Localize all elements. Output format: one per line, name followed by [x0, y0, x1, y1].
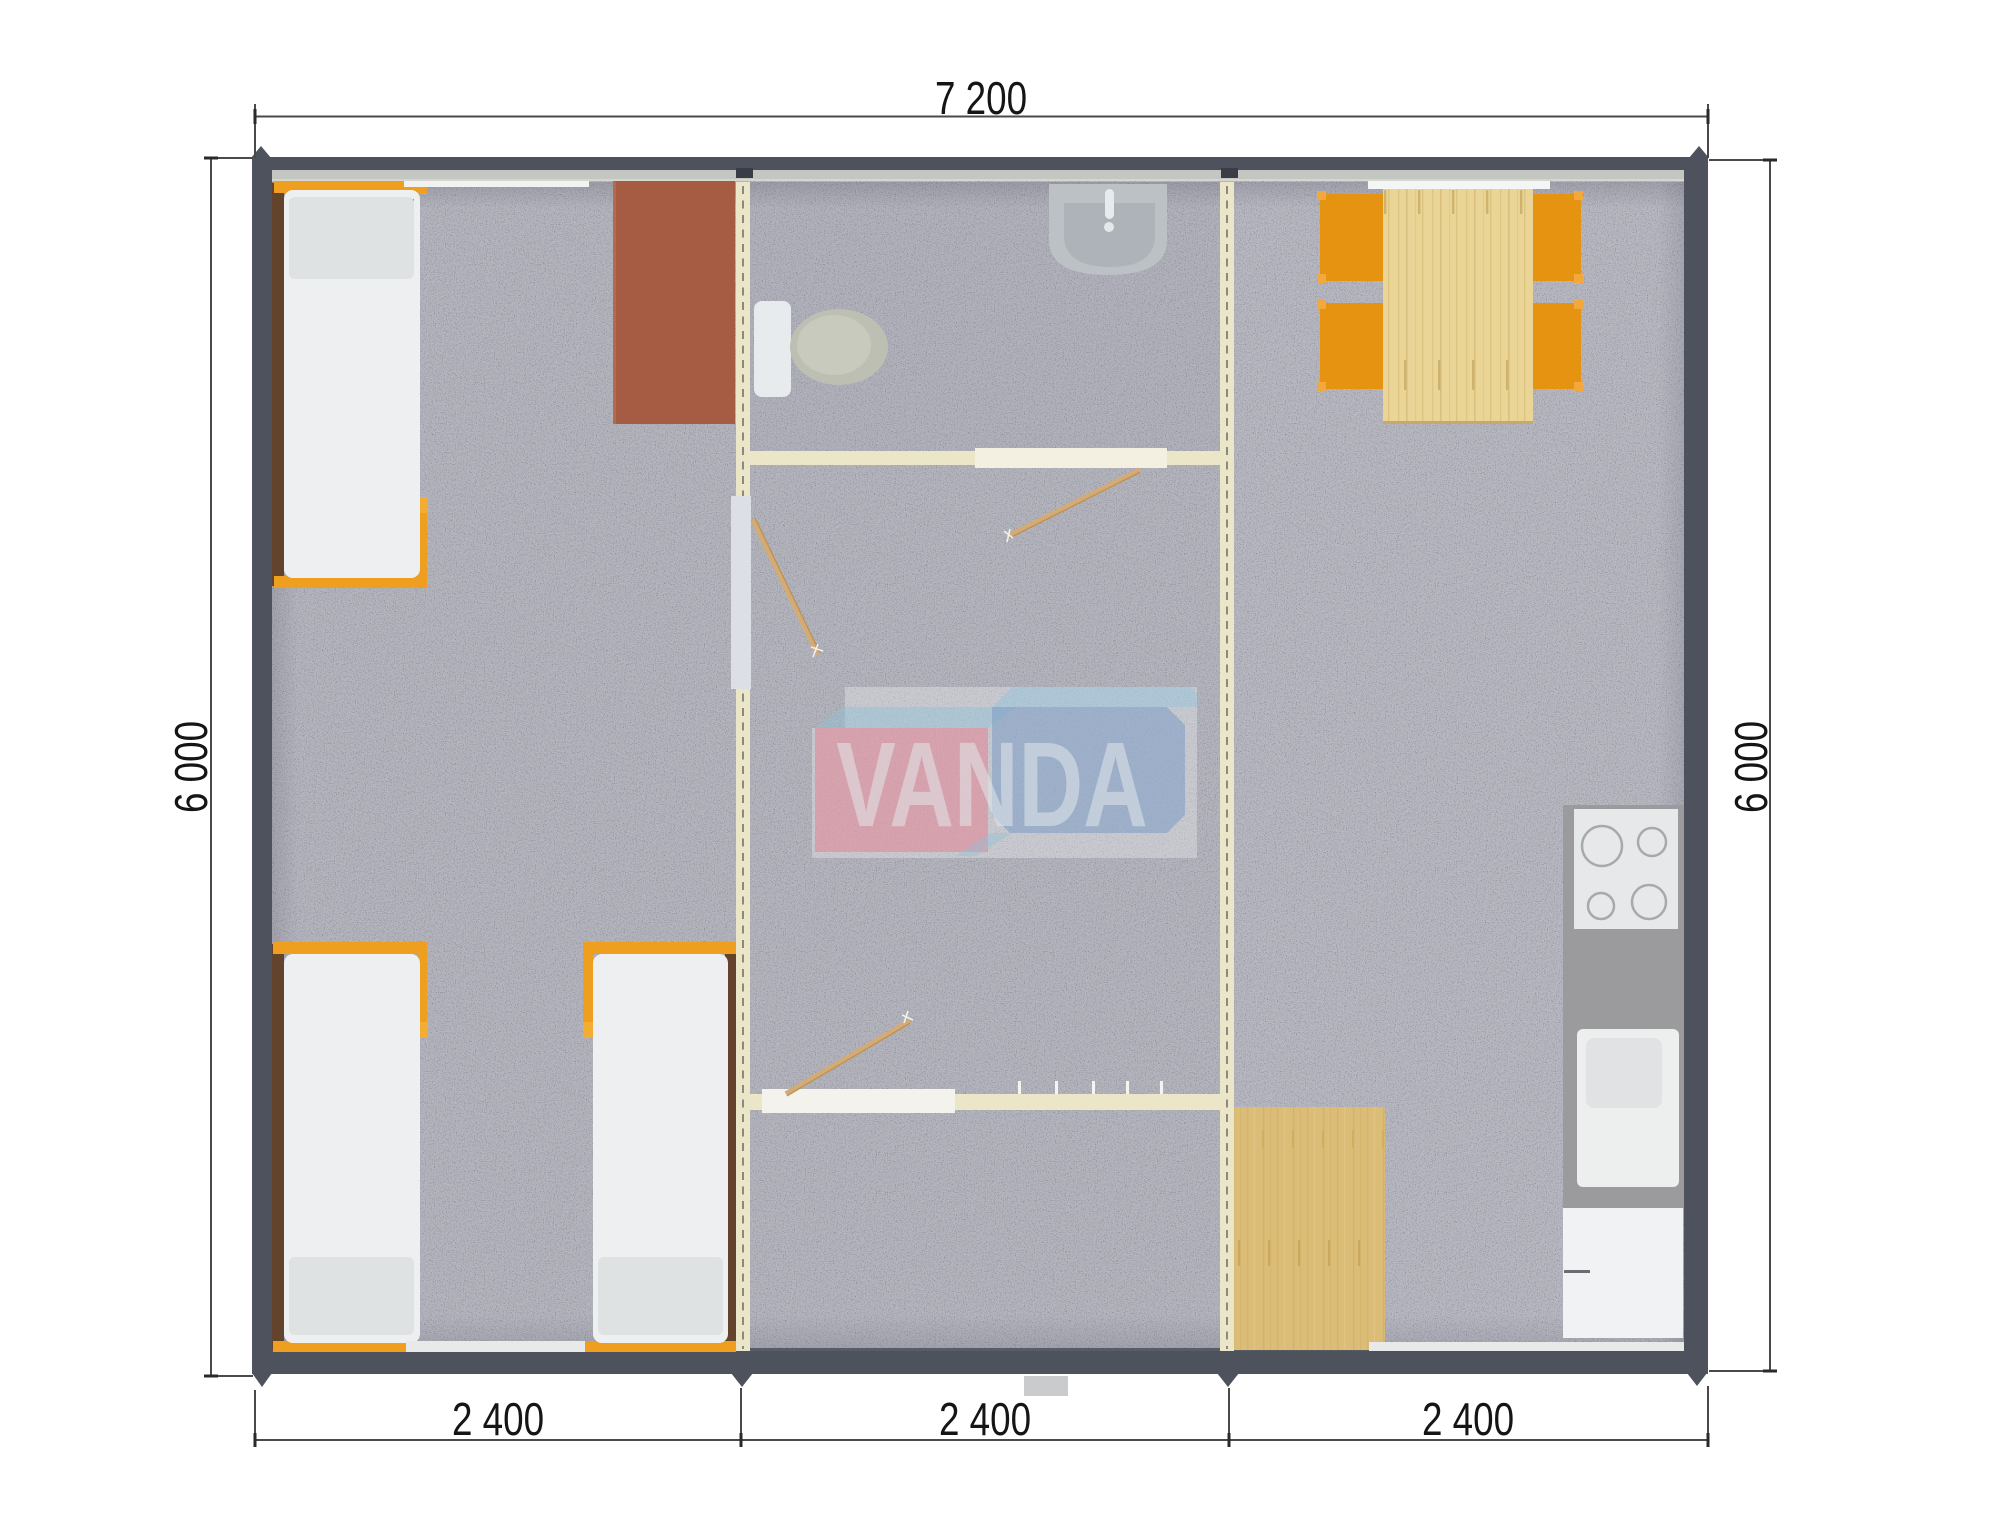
svg-text:2 400: 2 400 — [1422, 1393, 1514, 1445]
svg-text:6 000: 6 000 — [1725, 721, 1777, 813]
svg-text:7 200: 7 200 — [935, 72, 1027, 124]
svg-text:6 000: 6 000 — [165, 721, 217, 813]
svg-text:VANDA: VANDA — [836, 717, 1148, 852]
svg-text:2 400: 2 400 — [452, 1393, 544, 1445]
svg-text:2 400: 2 400 — [939, 1393, 1031, 1445]
